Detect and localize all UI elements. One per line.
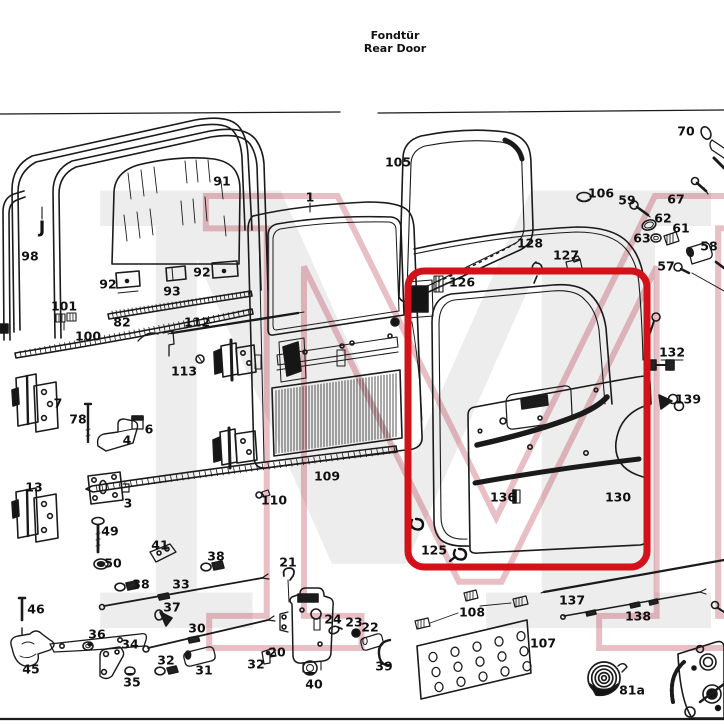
part-label-137: 137 [559, 593, 585, 608]
part-label-57: 57 [657, 259, 674, 274]
part-label-41: 41 [151, 538, 168, 553]
part-label-61: 61 [672, 221, 689, 236]
part-label-32: 32 [157, 653, 174, 668]
part-label-3: 3 [124, 496, 133, 511]
part-label-39: 39 [375, 659, 392, 674]
part-label-112: 112 [184, 315, 210, 330]
part-label-34: 34 [121, 637, 138, 652]
part-label-126: 126 [449, 275, 475, 290]
part-label-108: 108 [459, 605, 485, 620]
part-label-4: 4 [123, 433, 132, 448]
part-label-67: 67 [667, 192, 684, 207]
part-label-107: 107 [530, 636, 556, 651]
part-label-24: 24 [324, 612, 341, 627]
part-label-63: 63 [633, 231, 650, 246]
part-label-22: 22 [361, 620, 378, 635]
part-label-32: 32 [247, 657, 264, 672]
parts-diagram-canvas: M M [0, 0, 724, 724]
part-labels-layer: J989192939210110082112113110510612812712… [0, 0, 724, 724]
part-label-38: 38 [207, 549, 224, 564]
part-label-59: 59 [618, 193, 635, 208]
part-label-62: 62 [654, 211, 671, 226]
part-label-50: 50 [104, 556, 121, 571]
part-label-130: 130 [605, 490, 631, 505]
part-label-113: 113 [171, 364, 197, 379]
part-label-78: 78 [69, 412, 86, 427]
part-label-37: 37 [163, 600, 180, 615]
part-label-92: 92 [99, 277, 116, 292]
part-label-13: 13 [25, 480, 42, 495]
part-label-110: 110 [261, 493, 287, 508]
part-label-139: 139 [675, 392, 701, 407]
part-label-93: 93 [163, 284, 180, 299]
part-label-81a: 81a [619, 683, 645, 698]
part-label-30: 30 [188, 621, 205, 636]
part-label-40: 40 [305, 677, 322, 692]
part-label-106: 106 [588, 186, 614, 201]
part-label-6: 6 [145, 422, 154, 437]
part-label-82: 82 [113, 315, 130, 330]
part-label-38: 38 [132, 577, 149, 592]
part-label-125: 125 [421, 543, 447, 558]
part-label-23: 23 [345, 615, 362, 630]
part-label-101: 101 [51, 299, 77, 314]
part-label-58: 58 [700, 239, 717, 254]
part-label-91: 91 [213, 174, 230, 189]
part-label-33: 33 [172, 577, 189, 592]
part-label-1: 1 [306, 190, 315, 205]
part-label-21: 21 [279, 555, 296, 570]
part-label-70: 70 [677, 124, 694, 139]
part-label-136: 136 [490, 490, 516, 505]
part-label-100: 100 [75, 329, 101, 344]
part-label-J: J [39, 218, 45, 238]
part-label-109: 109 [314, 469, 340, 484]
part-label-132: 132 [659, 345, 685, 360]
part-label-46: 46 [27, 602, 44, 617]
part-label-45: 45 [22, 662, 39, 677]
part-label-35: 35 [123, 675, 140, 690]
part-label-20: 20 [268, 645, 285, 660]
part-label-98: 98 [21, 249, 38, 264]
part-label-128: 128 [517, 236, 543, 251]
part-label-105: 105 [385, 155, 411, 170]
part-label-49: 49 [101, 524, 118, 539]
part-label-127: 127 [553, 248, 579, 263]
part-label-7: 7 [54, 396, 63, 411]
part-label-138: 138 [625, 609, 651, 624]
part-label-31: 31 [195, 663, 212, 678]
part-label-36: 36 [88, 627, 105, 642]
part-label-92: 92 [193, 265, 210, 280]
